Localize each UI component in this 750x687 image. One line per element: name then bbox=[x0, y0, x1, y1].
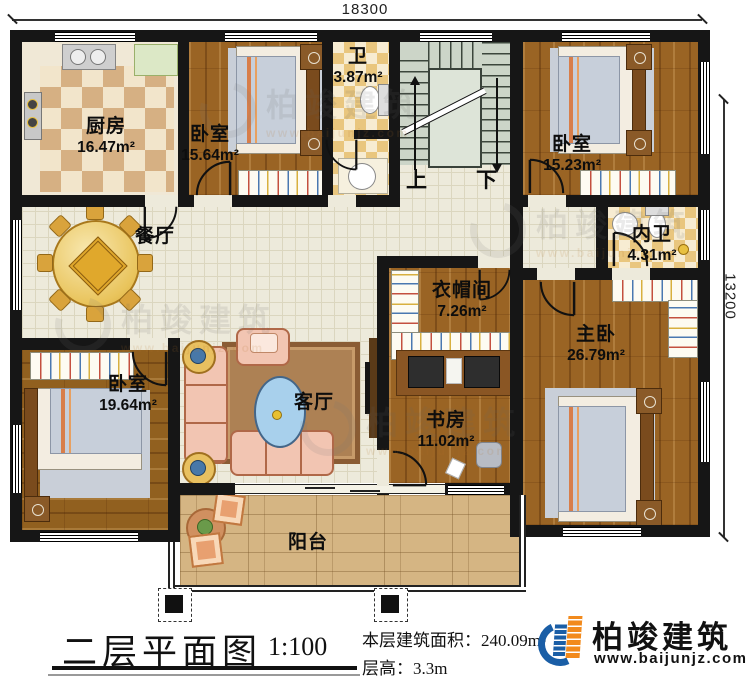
pillar-core bbox=[165, 595, 183, 613]
bedroom1-blanket bbox=[236, 56, 296, 144]
room-name: 内卫 bbox=[627, 224, 676, 247]
inner-bath-toilet-tank bbox=[645, 206, 669, 216]
wall-bath-stairs bbox=[389, 42, 400, 199]
bedroom2-window-right bbox=[700, 62, 710, 154]
master-label: 主卧 26.79m² bbox=[567, 324, 625, 365]
master-door-gap bbox=[537, 268, 575, 280]
room-area: 15.23m² bbox=[543, 157, 601, 176]
room-name: 厨房 bbox=[77, 116, 135, 139]
stairs-down-text: 下 bbox=[476, 168, 498, 193]
stairs-up-label: 上 bbox=[406, 168, 428, 193]
title-underline bbox=[52, 666, 357, 670]
tv-screen bbox=[365, 362, 370, 414]
room-area: 3.87m² bbox=[333, 69, 382, 88]
wall-kitchen-bottom bbox=[10, 195, 145, 207]
room-area: 19.64m² bbox=[99, 397, 157, 416]
kitchen-window bbox=[55, 32, 135, 42]
room-area: 11.02m² bbox=[418, 433, 475, 452]
stairs-up-text: 上 bbox=[406, 168, 428, 193]
balcony-cushion bbox=[212, 492, 246, 526]
study-door-arc bbox=[391, 449, 429, 487]
inner-bath-label: 内卫 4.31m² bbox=[627, 224, 676, 265]
coffee-table-dot bbox=[272, 410, 282, 420]
pillar-core bbox=[381, 595, 399, 613]
master-wardrobe-side bbox=[668, 300, 698, 358]
dim-line-top bbox=[12, 19, 702, 21]
cloakroom-door-gap bbox=[478, 256, 510, 268]
armchair-pillow bbox=[250, 333, 278, 353]
master-blanket bbox=[558, 406, 626, 512]
bedroom1-window bbox=[225, 32, 317, 42]
room-name: 客厅 bbox=[294, 392, 334, 415]
logo-building-orange-icon bbox=[566, 616, 583, 658]
bedroom2-blanket bbox=[558, 56, 620, 144]
brand-url: www.baijunjz.com bbox=[594, 650, 747, 667]
shower-icon bbox=[678, 244, 689, 255]
stairs-flight-top bbox=[428, 42, 482, 68]
room-area: 16.47m² bbox=[77, 139, 135, 158]
master-window-right bbox=[700, 382, 710, 462]
toilet-tank bbox=[378, 84, 389, 116]
bedroom3-label: 卧室 19.64m² bbox=[99, 374, 157, 415]
room-name: 卧室 bbox=[181, 124, 239, 147]
pillar-right bbox=[374, 588, 408, 622]
room-name: 餐厅 bbox=[135, 226, 175, 249]
wall-bath-partition bbox=[354, 130, 389, 139]
bedroom2-door-gap bbox=[528, 195, 566, 207]
master-window-bottom bbox=[563, 527, 641, 537]
master-door-arc bbox=[538, 280, 576, 318]
stairs-arrow-down bbox=[496, 78, 498, 166]
study-door-gap bbox=[377, 450, 389, 486]
bedroom3-window-bottom bbox=[40, 532, 138, 542]
floor-height-text: 层高：3.3m bbox=[362, 654, 447, 679]
inner-bath-door-gap bbox=[612, 268, 650, 280]
title-underline-thin bbox=[48, 674, 360, 676]
bedroom2-nightstand2 bbox=[626, 130, 652, 156]
study-chair bbox=[476, 442, 502, 468]
bedroom2-nightstand bbox=[626, 44, 652, 70]
wall-innerbath-left bbox=[596, 207, 608, 268]
stairs-arrow-up-head bbox=[410, 76, 420, 85]
bath-label: 卫 3.87m² bbox=[333, 46, 382, 87]
room-name: 卧室 bbox=[543, 134, 601, 157]
floor-plan: 柏竣建筑 www.baijunjz.com 柏竣建筑 www.baijunjz.… bbox=[0, 0, 750, 687]
floor-area-text: 本层建筑面积：240.09m² bbox=[362, 626, 546, 651]
bedroom1-label: 卧室 15.64m² bbox=[181, 124, 239, 165]
wall-bedroom1-bath bbox=[322, 42, 333, 207]
stairs-down-label: 下 bbox=[476, 168, 498, 193]
room-area: 4.31m² bbox=[627, 247, 676, 266]
living-label: 客厅 bbox=[294, 392, 334, 415]
side-table-inner bbox=[190, 348, 206, 364]
room-name: 卫 bbox=[333, 46, 382, 69]
balcony-label: 阳台 bbox=[288, 532, 328, 555]
study-window bbox=[448, 485, 504, 495]
balcony-parapet-right bbox=[519, 495, 526, 587]
bath-hall-gap bbox=[328, 195, 356, 207]
room-name: 阳台 bbox=[288, 532, 328, 555]
room-area: 26.79m² bbox=[567, 347, 625, 366]
cloakroom-label: 衣帽间 7.26m² bbox=[432, 280, 492, 321]
room-name: 衣帽间 bbox=[432, 280, 492, 303]
scale-label: 1:100 bbox=[268, 632, 327, 662]
dim-top-label: 18300 bbox=[330, 1, 400, 18]
room-area: 7.26m² bbox=[432, 303, 492, 322]
sliding-door-leaf2 bbox=[350, 490, 380, 492]
bedroom3-headboard bbox=[24, 388, 38, 500]
side-table2-inner bbox=[190, 460, 206, 476]
cloakroom-wardrobe-left bbox=[391, 270, 419, 334]
bath-door-arc bbox=[324, 138, 358, 172]
chair bbox=[137, 254, 153, 272]
wall-living-bottom-left bbox=[168, 483, 235, 495]
inner-bath-window bbox=[700, 210, 710, 260]
dining-label: 餐厅 bbox=[135, 226, 175, 249]
kitchen-label: 厨房 16.47m² bbox=[77, 116, 135, 157]
balcony-parapet-left bbox=[168, 542, 175, 588]
bedroom2-label: 卧室 15.23m² bbox=[543, 134, 601, 175]
chair bbox=[37, 254, 53, 272]
dim-right-label: 13200 bbox=[722, 267, 739, 327]
stove-burner1 bbox=[27, 99, 38, 110]
room-name: 卧室 bbox=[99, 374, 157, 397]
pillar-left bbox=[158, 588, 192, 622]
bedroom2-window-top bbox=[562, 32, 650, 42]
stairs-window bbox=[420, 32, 492, 42]
study-monitor2 bbox=[464, 356, 500, 388]
wall-bedroom3-right bbox=[168, 338, 180, 542]
stove-burner2 bbox=[27, 117, 38, 128]
dining-window bbox=[12, 220, 22, 310]
master-nightstand bbox=[636, 388, 662, 414]
sliding-door-leaf bbox=[305, 487, 335, 489]
stairs-arrow-up bbox=[414, 82, 416, 170]
balcony-cushion2 bbox=[188, 532, 224, 568]
master-nightstand2 bbox=[636, 500, 662, 526]
study-pad bbox=[446, 358, 462, 384]
room-name: 主卧 bbox=[567, 324, 625, 347]
study-monitor bbox=[408, 356, 444, 388]
chair bbox=[86, 306, 104, 322]
toilet-icon bbox=[360, 86, 380, 114]
bedroom1-wardrobe bbox=[238, 170, 330, 198]
brand-logo: 柏竣建筑 www.baijunjz.com bbox=[536, 608, 746, 678]
kitchen-sink-bowl2 bbox=[90, 49, 106, 65]
room-name: 书房 bbox=[418, 410, 475, 433]
balcony-parapet-bottom bbox=[168, 585, 526, 592]
study-label: 书房 11.02m² bbox=[418, 410, 475, 451]
kitchen-counter bbox=[134, 44, 178, 76]
kitchen-sink-bowl bbox=[70, 49, 86, 65]
room-area: 15.64m² bbox=[181, 147, 239, 166]
bedroom3-door-gap bbox=[130, 338, 168, 350]
bedroom3-window-left bbox=[12, 425, 22, 493]
bedroom3-nightstand bbox=[24, 496, 50, 522]
